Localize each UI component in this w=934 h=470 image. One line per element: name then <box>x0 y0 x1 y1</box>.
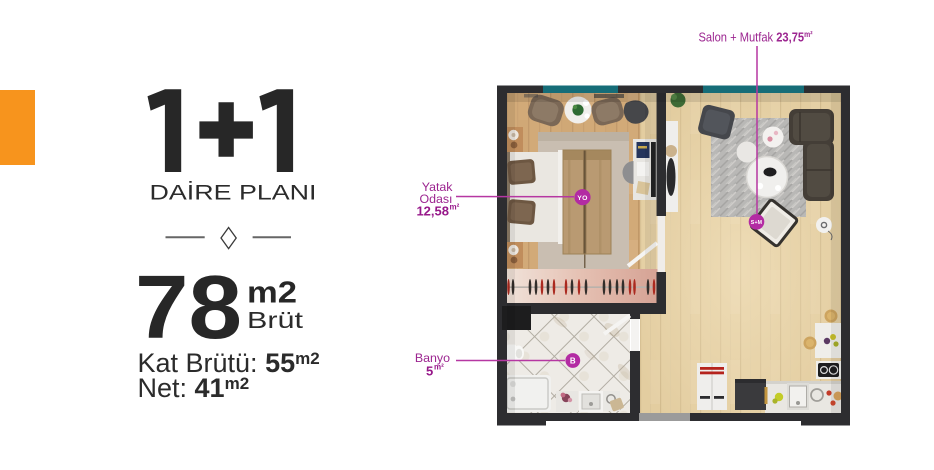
svg-text:5: 5 <box>426 364 433 379</box>
svg-text:m²: m² <box>450 203 460 212</box>
svg-text:DAİRE PLANI: DAİRE PLANI <box>150 181 317 205</box>
svg-text:12,58: 12,58 <box>416 204 449 219</box>
svg-text:YO: YO <box>577 195 587 202</box>
svg-text:B: B <box>570 357 576 366</box>
svg-text:m²: m² <box>434 363 444 372</box>
svg-text:Salon + Mutfak 23,75m²: Salon + Mutfak 23,75m² <box>699 30 813 45</box>
svg-text:S+M: S+M <box>751 220 762 226</box>
svg-text:78: 78 <box>135 258 242 358</box>
svg-text:m2: m2 <box>247 275 297 310</box>
svg-text:Brüt: Brüt <box>247 307 304 333</box>
svg-text:Net: 41m2: Net: 41m2 <box>138 373 250 403</box>
